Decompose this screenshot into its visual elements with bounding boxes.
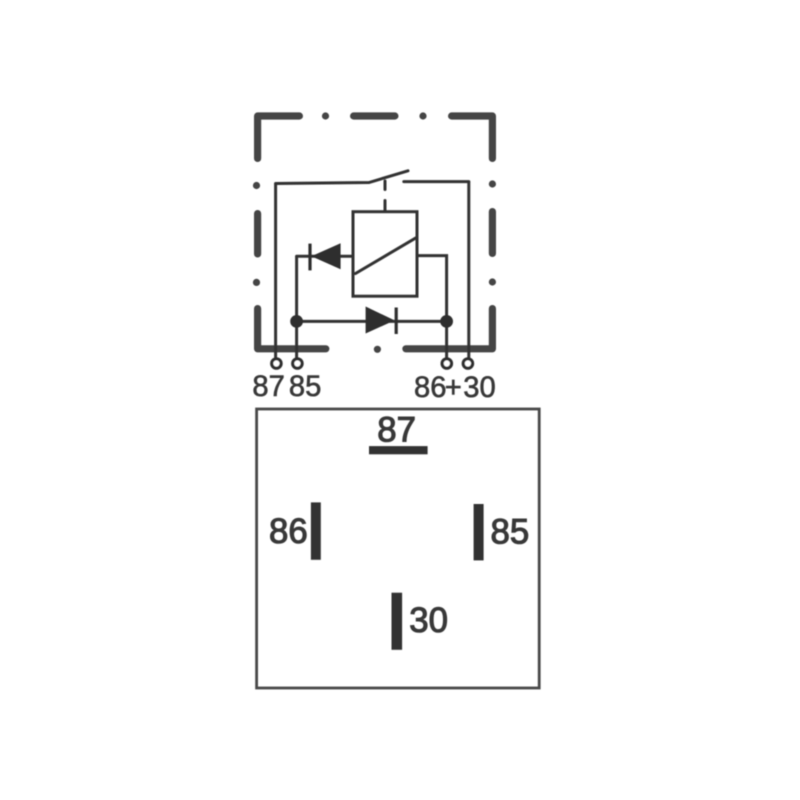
svg-text:+: + — [445, 372, 462, 404]
svg-text:30: 30 — [409, 601, 448, 640]
svg-text:30: 30 — [463, 372, 495, 404]
svg-text:85: 85 — [491, 512, 530, 551]
svg-text:87: 87 — [377, 410, 416, 449]
svg-text:87: 87 — [252, 371, 284, 403]
svg-text:86: 86 — [269, 512, 308, 551]
svg-text:85: 85 — [289, 371, 321, 403]
svg-text:86: 86 — [414, 372, 446, 404]
